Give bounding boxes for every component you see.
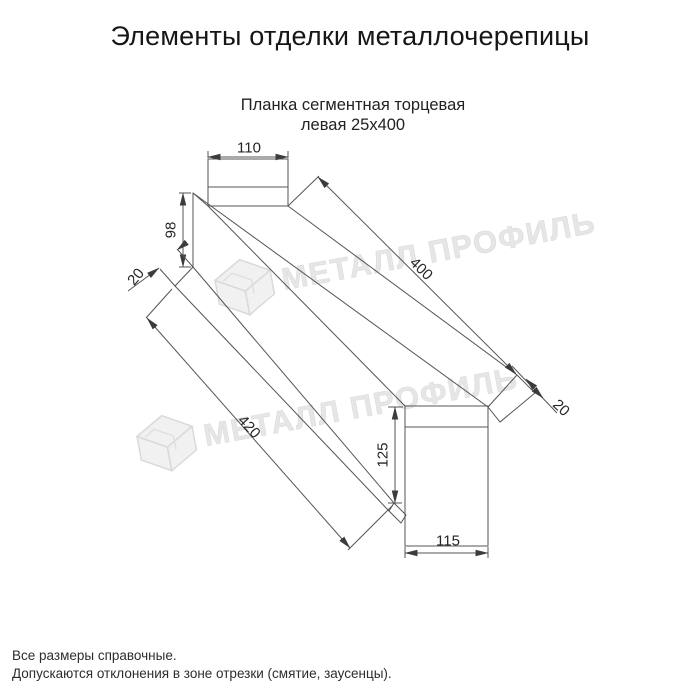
- page: Элементы отделки металлочерепицы Планка …: [0, 0, 700, 700]
- watermark-text: МЕТАЛЛ ПРОФИЛЬ: [279, 204, 599, 297]
- technical-drawing: МЕТАЛЛ ПРОФИЛЬ МЕТАЛЛ ПРОФИЛЬ: [0, 0, 700, 700]
- metal-profil-logo-icon: [134, 411, 199, 476]
- watermark-upper: МЕТАЛЛ ПРОФИЛЬ: [212, 195, 601, 320]
- dim-label-bottom-width: 115: [436, 533, 460, 550]
- drawing-svg: МЕТАЛЛ ПРОФИЛЬ МЕТАЛЛ ПРОФИЛЬ: [0, 0, 700, 700]
- dim-label-top-width: 110: [237, 140, 261, 157]
- strip-outline: [175, 159, 535, 546]
- footer-note-1: Все размеры справочные.: [12, 647, 392, 665]
- dim-label-left-height: 98: [163, 222, 180, 239]
- dim-label-bottom-height: 125: [375, 442, 392, 467]
- dimension-lines: [128, 151, 557, 558]
- footer-note-2: Допускаются отклонения в зоне отрезки (с…: [12, 665, 392, 683]
- footer-notes: Все размеры справочные. Допускаются откл…: [12, 647, 392, 682]
- metal-profil-logo-icon: [212, 255, 277, 320]
